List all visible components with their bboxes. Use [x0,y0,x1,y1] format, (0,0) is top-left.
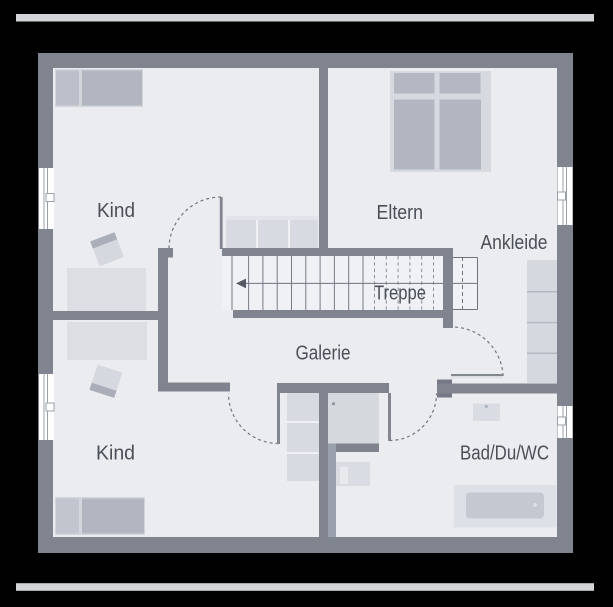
svg-text:Kind: Kind [97,200,135,222]
svg-text:Eltern: Eltern [377,202,424,224]
svg-text:Kind: Kind [96,443,135,465]
svg-text:Treppe: Treppe [374,283,426,305]
svg-text:Ankleide: Ankleide [481,232,548,254]
svg-text:Bad/Du/WC: Bad/Du/WC [460,443,549,465]
svg-text:Galerie: Galerie [296,343,351,365]
